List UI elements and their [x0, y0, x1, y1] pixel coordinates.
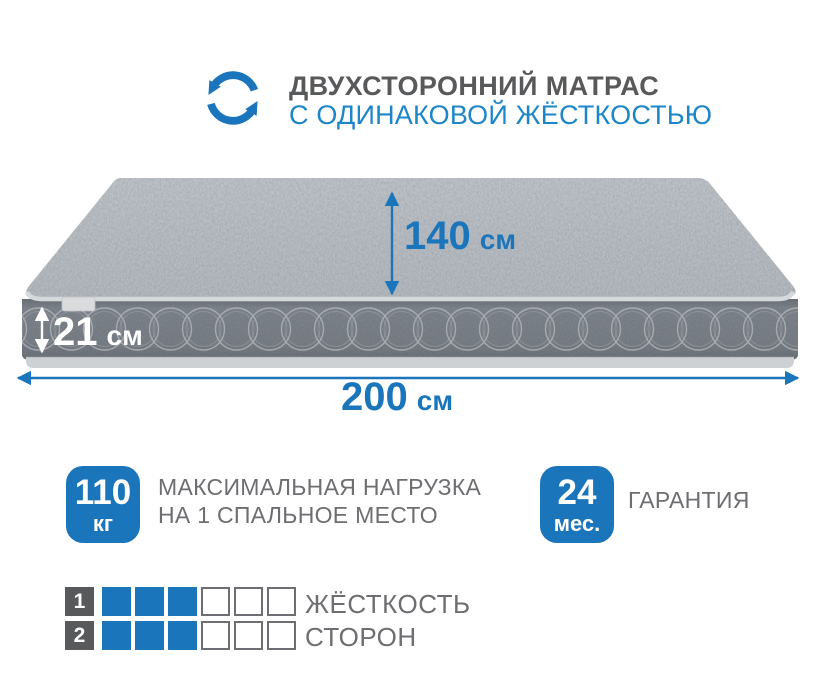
length-value: 200 [341, 377, 408, 417]
length-unit: см [417, 387, 453, 415]
firmness-label: ЖЁСТКОСТЬ СТОРОН [305, 588, 471, 654]
mattress-infographic: ДВУХСТОРОННИЙ МАТРАС С ОДИНАКОВОЙ ЖЁСТКО… [0, 0, 816, 700]
depth-dimension-label: 140 см [404, 216, 516, 256]
warranty-value: 24 [558, 475, 597, 510]
firmness-row-1: 1 [65, 587, 296, 616]
firmness-cell [234, 587, 263, 616]
page-subtitle: С ОДИНАКОВОЙ ЖЁСТКОСТЬЮ [289, 101, 689, 130]
firmness-cell [168, 621, 197, 650]
max-load-line2: НА 1 СПАЛЬНОЕ МЕСТО [158, 501, 481, 529]
height-unit: см [107, 322, 143, 350]
firmness-cell [135, 587, 164, 616]
warranty-label: ГАРАНТИЯ [628, 486, 750, 514]
mattress-bottom-piping [26, 357, 794, 368]
firmness-label-line1: ЖЁСТКОСТЬ [305, 588, 471, 621]
firmness-cell [201, 621, 230, 650]
length-dimension-label: 200 см [341, 377, 453, 417]
firmness-row-1-number: 1 [65, 587, 94, 616]
firmness-row-2-number: 2 [65, 621, 94, 650]
firmness-cell [102, 587, 131, 616]
mattress-drawing [0, 160, 816, 410]
max-load-value: 110 [75, 475, 131, 510]
depth-unit: см [480, 226, 516, 254]
firmness-label-line2: СТОРОН [305, 621, 471, 654]
max-load-line1: МАКСИМАЛЬНАЯ НАГРУЗКА [158, 473, 481, 501]
header: ДВУХСТОРОННИЙ МАТРАС С ОДИНАКОВОЙ ЖЁСТКО… [289, 71, 689, 130]
height-dimension-label: 21 см [53, 312, 143, 352]
max-load-unit: кг [93, 513, 113, 535]
page-title: ДВУХСТОРОННИЙ МАТРАС [289, 71, 689, 101]
firmness-cell [168, 587, 197, 616]
firmness-cell [234, 621, 263, 650]
depth-value: 140 [404, 216, 471, 256]
rotate-arrows-icon [203, 66, 263, 130]
firmness-row-2: 2 [65, 621, 296, 650]
firmness-cell [267, 621, 296, 650]
firmness-cell [201, 587, 230, 616]
firmness-cell [102, 621, 131, 650]
max-load-badge: 110 кг [66, 466, 140, 543]
warranty-badge: 24 мес. [540, 466, 614, 543]
firmness-cell [267, 587, 296, 616]
firmness-cell [135, 621, 164, 650]
max-load-description: МАКСИМАЛЬНАЯ НАГРУЗКА НА 1 СПАЛЬНОЕ МЕСТ… [158, 473, 481, 529]
warranty-unit: мес. [554, 513, 601, 535]
firmness-scale: 1 2 [65, 587, 296, 655]
mattress-label-tag [62, 297, 95, 311]
height-value: 21 [53, 312, 98, 352]
mattress-illustration [0, 160, 816, 410]
